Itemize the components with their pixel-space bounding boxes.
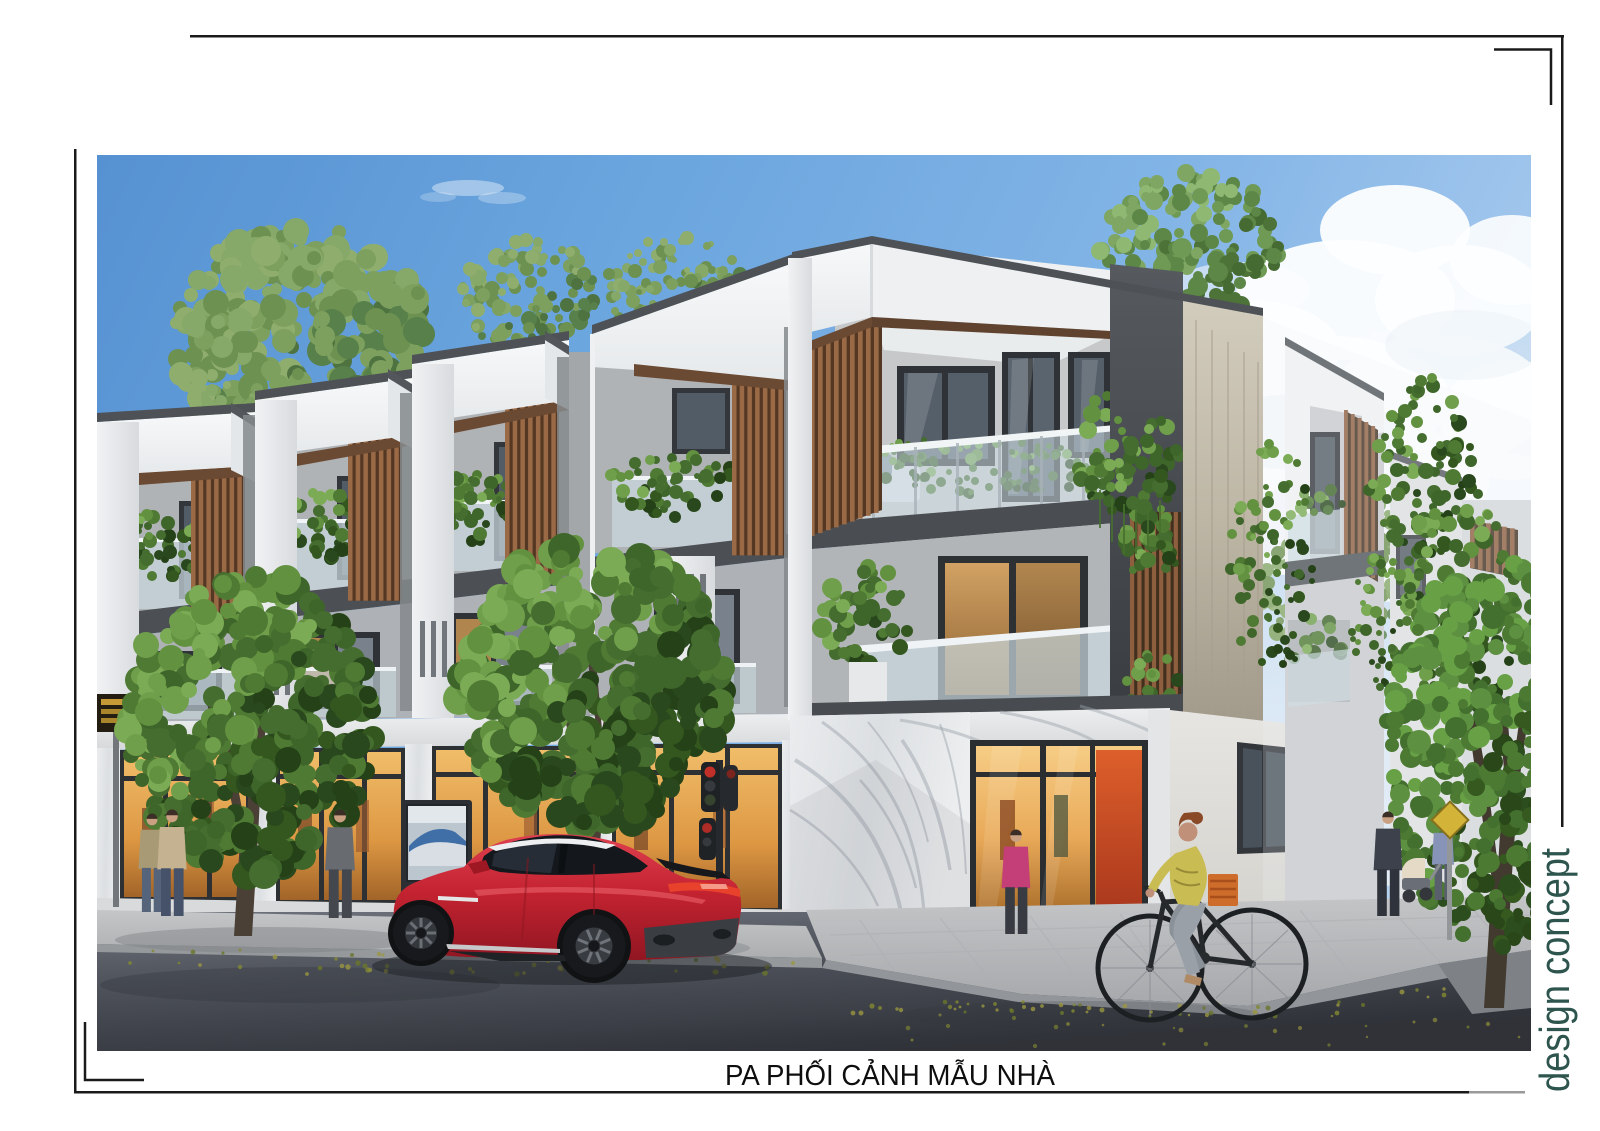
svg-text:PA PHỐI CẢNH MẪU NHÀ: PA PHỐI CẢNH MẪU NHÀ — [725, 1058, 1056, 1092]
svg-text:design concept: design concept — [1531, 848, 1578, 1092]
